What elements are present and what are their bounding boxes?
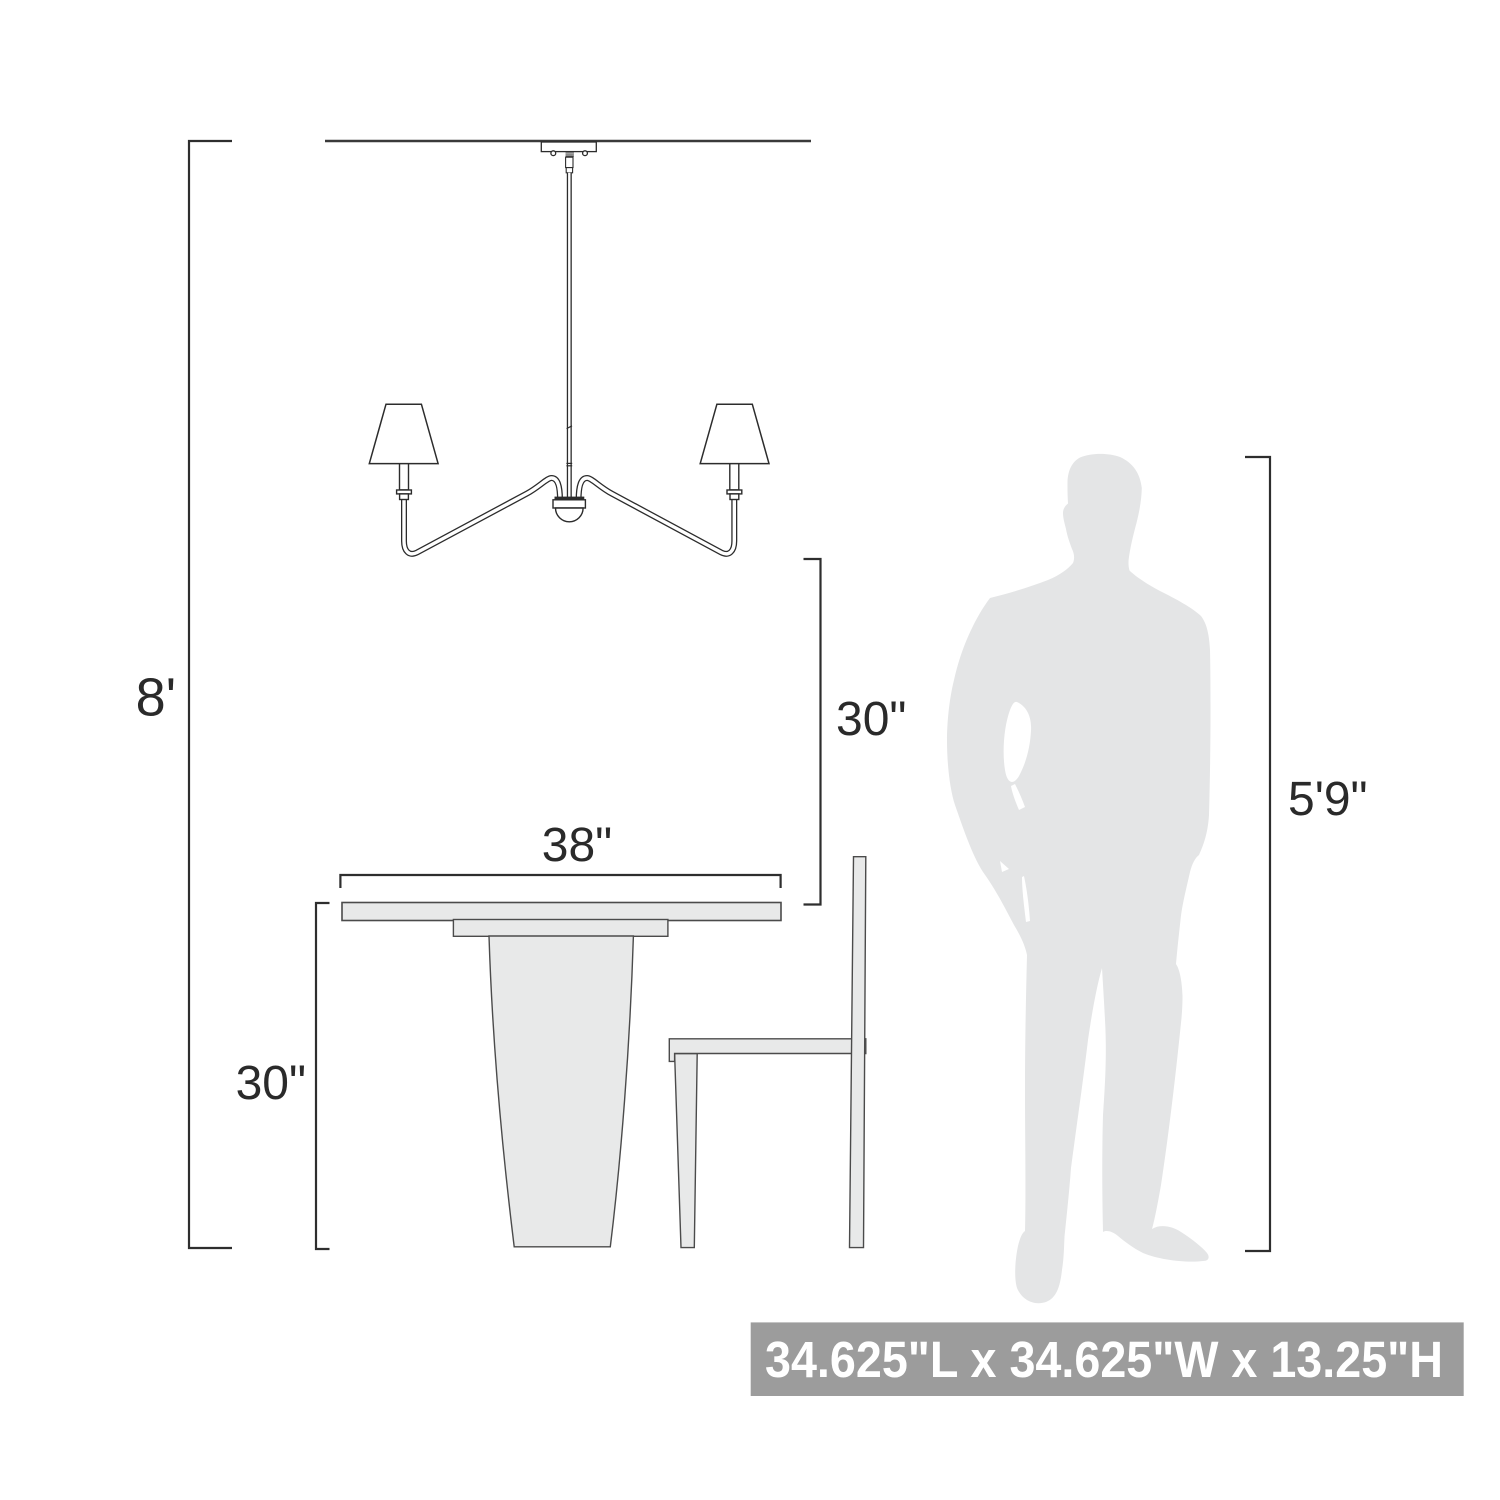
svg-text:30": 30" xyxy=(236,1057,306,1110)
svg-text:30": 30" xyxy=(836,693,906,746)
svg-text:8': 8' xyxy=(136,668,176,728)
svg-text:34.625"L x 34.625"W x 13.25"H: 34.625"L x 34.625"W x 13.25"H xyxy=(765,1331,1443,1388)
svg-text:5'9": 5'9" xyxy=(1288,773,1368,826)
svg-text:38": 38" xyxy=(542,819,612,872)
